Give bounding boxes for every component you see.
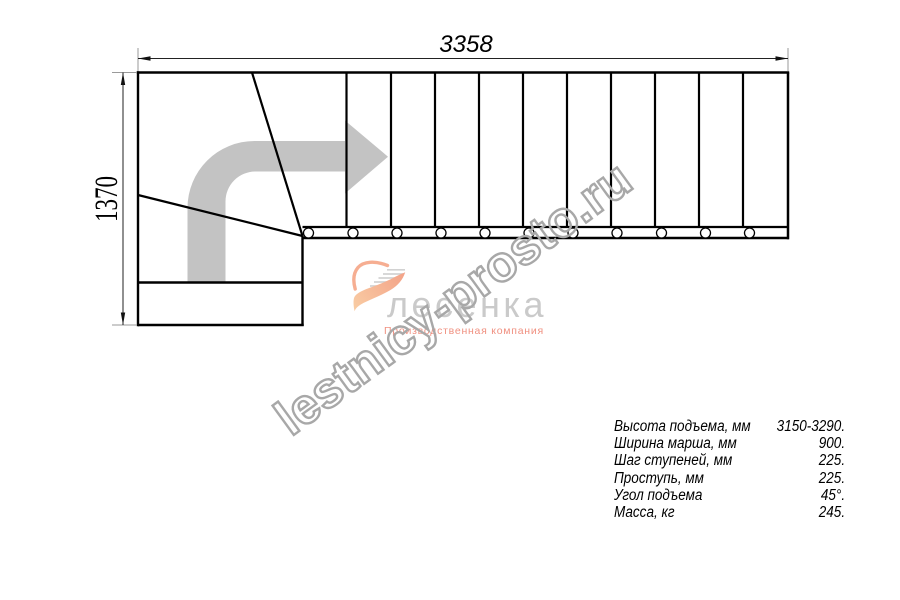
svg-text:lestnicy-prosto.ru: lestnicy-prosto.ru [265,150,642,446]
svg-text:1370: 1370 [89,176,125,222]
svg-text:3358: 3358 [439,31,493,58]
